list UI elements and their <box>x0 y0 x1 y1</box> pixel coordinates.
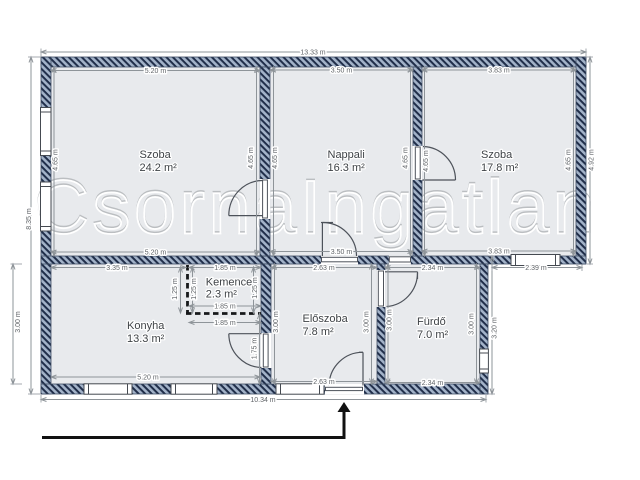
svg-text:3.35 m: 3.35 m <box>106 265 128 272</box>
svg-text:3.50 m: 3.50 m <box>331 249 353 256</box>
svg-text:5.20 m: 5.20 m <box>145 68 167 75</box>
svg-text:Nappali: Nappali <box>328 149 365 161</box>
svg-text:3.20 m: 3.20 m <box>492 317 499 339</box>
svg-text:Szoba: Szoba <box>481 149 513 161</box>
svg-text:4.65 m: 4.65 m <box>423 150 430 172</box>
svg-text:2.63 m: 2.63 m <box>313 379 335 386</box>
svg-text:3.00 m: 3.00 m <box>387 309 394 331</box>
svg-text:1.85 m: 1.85 m <box>214 303 236 310</box>
svg-text:1.75 m: 1.75 m <box>252 338 259 360</box>
svg-text:7.8 m²: 7.8 m² <box>303 326 335 338</box>
svg-text:4.65 m: 4.65 m <box>272 147 279 169</box>
svg-text:10.34 m: 10.34 m <box>250 397 275 404</box>
svg-text:1.85 m: 1.85 m <box>214 320 236 327</box>
svg-text:3.83 m: 3.83 m <box>488 67 510 74</box>
svg-text:3.00 m: 3.00 m <box>15 311 22 333</box>
svg-text:3.00 m: 3.00 m <box>469 313 476 335</box>
svg-text:Szoba: Szoba <box>140 149 172 161</box>
svg-text:3.83 m: 3.83 m <box>488 248 510 255</box>
svg-text:17.8 m²: 17.8 m² <box>481 162 519 174</box>
svg-text:2.39 m: 2.39 m <box>525 265 547 272</box>
svg-text:4.65 m: 4.65 m <box>248 147 255 169</box>
svg-text:CsornaIngatlan: CsornaIngatlan <box>34 166 598 251</box>
svg-text:Előszoba: Előszoba <box>303 313 349 325</box>
svg-text:2.3 m²: 2.3 m² <box>206 289 238 301</box>
svg-text:5.20 m: 5.20 m <box>137 374 159 381</box>
svg-text:3.50 m: 3.50 m <box>331 67 353 74</box>
svg-text:1.25 m: 1.25 m <box>191 278 198 300</box>
svg-text:Kemence: Kemence <box>206 277 252 289</box>
svg-text:2.63 m: 2.63 m <box>313 265 335 272</box>
svg-text:4.65 m: 4.65 m <box>53 149 60 171</box>
svg-text:3.00 m: 3.00 m <box>364 311 371 333</box>
svg-text:3.00 m: 3.00 m <box>273 311 280 333</box>
svg-text:2.34 m: 2.34 m <box>422 265 444 272</box>
svg-text:1.85 m: 1.85 m <box>214 265 236 272</box>
svg-text:13.33 m: 13.33 m <box>300 49 325 56</box>
svg-text:4.65 m: 4.65 m <box>566 149 573 171</box>
svg-text:24.2 m²: 24.2 m² <box>140 162 178 174</box>
svg-text:16.3 m²: 16.3 m² <box>328 162 366 174</box>
svg-text:5.20 m: 5.20 m <box>145 249 167 256</box>
svg-text:1.25 m: 1.25 m <box>252 277 259 299</box>
svg-text:4.65 m: 4.65 m <box>403 147 410 169</box>
svg-text:7.0 m²: 7.0 m² <box>417 329 449 341</box>
svg-text:1.25 m: 1.25 m <box>172 278 179 300</box>
svg-text:4.92 m: 4.92 m <box>589 149 596 171</box>
svg-text:13.3 m²: 13.3 m² <box>127 333 165 345</box>
svg-text:Konyha: Konyha <box>127 320 165 332</box>
svg-text:8.35 m: 8.35 m <box>26 208 33 230</box>
svg-text:2.34 m: 2.34 m <box>422 380 444 387</box>
svg-text:Fürdő: Fürdő <box>417 316 446 328</box>
